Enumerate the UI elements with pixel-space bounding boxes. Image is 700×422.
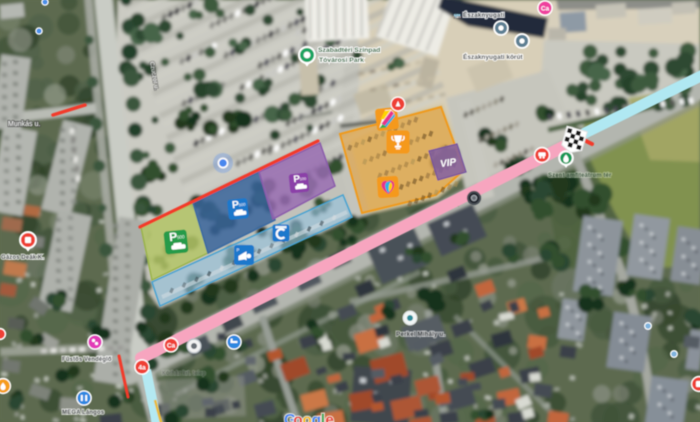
- svg-text:VIP: VIP: [439, 157, 457, 170]
- svg-text:Ca: Ca: [541, 5, 550, 12]
- svg-text:Tóvárosi Park: Tóvárosi Park: [319, 57, 364, 64]
- svg-text:Szabadtéri Színpad: Szabadtéri Színpad: [318, 47, 380, 54]
- svg-text:500: 500: [177, 234, 186, 240]
- svg-text:MEGA Lángos: MEGA Lángos: [62, 409, 105, 416]
- svg-text:Perkel Mihály u.: Perkel Mihály u.: [396, 331, 445, 338]
- svg-text:o: o: [293, 412, 302, 422]
- svg-text:🚌 Északnyugati: 🚌 Északnyugati: [453, 10, 505, 19]
- svg-text:Kórház krt. telep: Kórház krt. telep: [162, 371, 206, 377]
- svg-text:Munkás u.: Munkás u.: [8, 121, 40, 128]
- svg-text:e: e: [325, 412, 334, 422]
- svg-text:P: P: [237, 248, 240, 253]
- svg-text:Gázos Deák K.: Gázos Deák K.: [1, 254, 44, 261]
- svg-text:500: 500: [300, 177, 307, 182]
- svg-text:g: g: [312, 412, 321, 422]
- svg-text:Füstös Vendéglő: Füstös Vendéglő: [62, 356, 112, 363]
- svg-text:Ca: Ca: [167, 342, 176, 349]
- svg-text:Északnyugati körút: Északnyugati körút: [463, 52, 523, 61]
- svg-text:Szent amfiteátrum tér: Szent amfiteátrum tér: [548, 172, 612, 179]
- svg-text:o: o: [302, 412, 311, 422]
- svg-text:4a: 4a: [138, 364, 146, 371]
